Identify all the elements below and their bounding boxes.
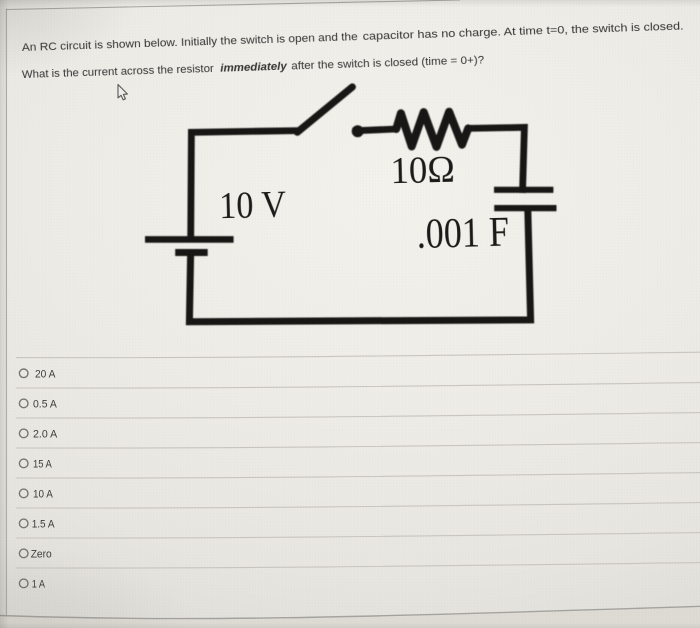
svg-text:.001 F: .001 F — [416, 209, 509, 257]
svg-text:1.5 A: 1.5 A — [32, 519, 55, 531]
svg-text:An RC circuit is shown below.: An RC circuit is shown below. Initially … — [22, 31, 358, 54]
svg-text:10 V: 10 V — [219, 183, 287, 227]
svg-text:immediately: immediately — [220, 61, 288, 75]
svg-text:What is the current across the: What is the current across the resistor — [22, 63, 215, 81]
svg-text:after the switch is closed (ti: after the switch is closed (time = 0+)? — [291, 54, 484, 72]
svg-text:capacitor has no charge. At t: capacitor has no charge. At time t=0, th… — [363, 20, 684, 42]
svg-text:15 A: 15 A — [33, 459, 52, 471]
svg-text:0.5 A: 0.5 A — [33, 399, 57, 411]
svg-text:1 A: 1 A — [32, 579, 46, 591]
svg-text:20 A: 20 A — [35, 368, 56, 380]
svg-text:10Ω: 10Ω — [390, 149, 455, 192]
svg-text:10 A: 10 A — [33, 489, 53, 501]
svg-text:2.0 A: 2.0 A — [33, 429, 58, 441]
svg-text:Zero: Zero — [31, 549, 52, 561]
